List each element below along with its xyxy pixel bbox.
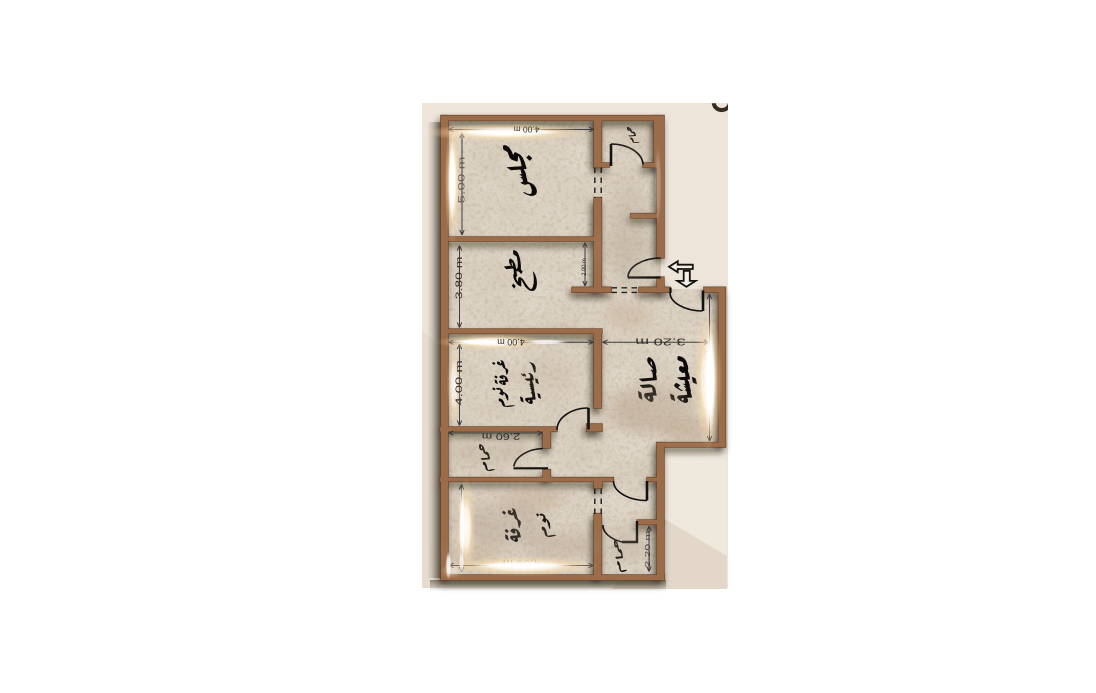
svg-text:3.20 m: 3.20 m <box>635 336 685 347</box>
svg-text:2.60 m: 2.60 m <box>482 431 520 441</box>
svg-text:5.00 m: 5.00 m <box>456 157 466 204</box>
svg-text:4.00 m: 4.00 m <box>497 337 525 347</box>
svg-text:4.00 m: 4.00 m <box>514 124 540 134</box>
svg-text:4.00 m: 4.00 m <box>454 360 464 405</box>
svg-text:2.00 m: 2.00 m <box>582 258 588 276</box>
svg-text:3.80 m: 3.80 m <box>454 257 464 300</box>
svg-text:2.20 m: 2.20 m <box>644 531 652 568</box>
